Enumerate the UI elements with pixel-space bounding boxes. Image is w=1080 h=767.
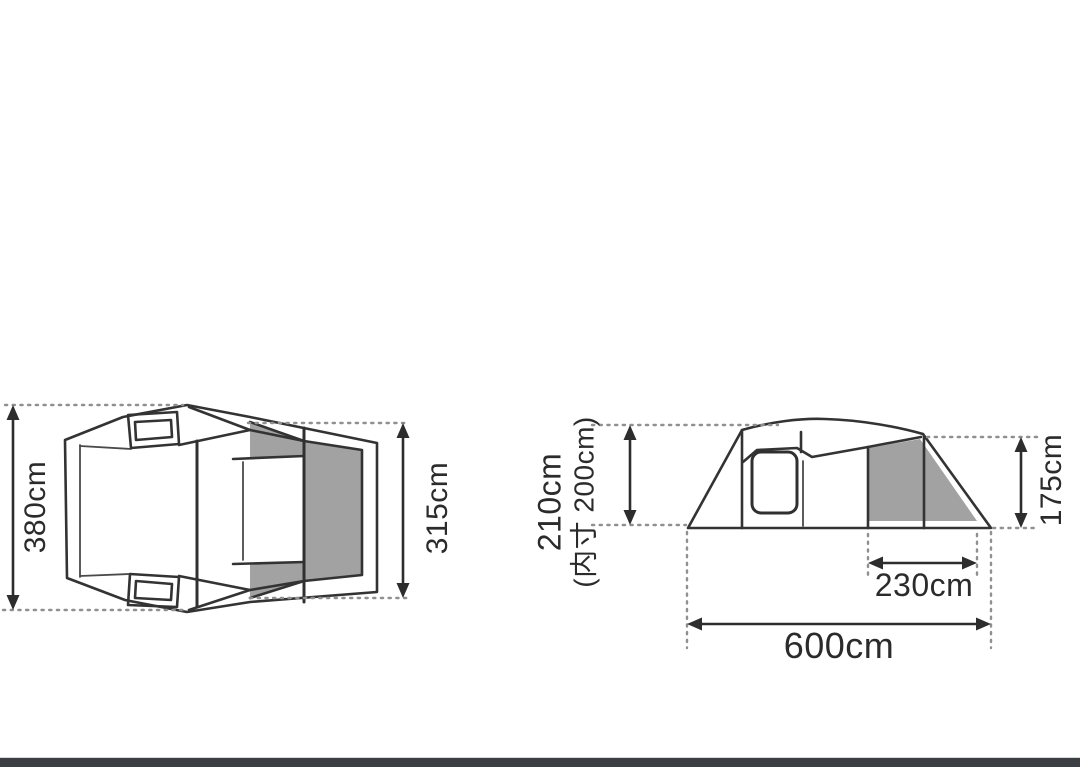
dimension-arrow-175 — [1015, 437, 1028, 528]
dimension-arrow-210 — [624, 425, 637, 525]
dimension-arrow-380 — [7, 405, 20, 610]
tent-dimension-diagram: 380cm 315cm 210cm (内寸 200cm) 175cm 230cm… — [0, 0, 1080, 767]
top-view-vent-line-bottom — [179, 576, 250, 590]
label-side-view-rear-height: 175cm — [1035, 434, 1069, 527]
tent-side-view-drawing — [688, 419, 991, 528]
dimension-arrow-315 — [397, 423, 410, 598]
label-top-view-inner-width: 315cm — [421, 462, 455, 555]
side-view-reference-lines — [592, 425, 1037, 648]
side-view-door-window — [752, 452, 797, 513]
top-view-vent-bottom-inner — [135, 581, 172, 600]
label-peak-height-value: 210cm — [532, 416, 568, 587]
tent-top-view-drawing — [65, 405, 377, 612]
label-top-view-width: 380cm — [19, 461, 53, 554]
footer-bar — [0, 757, 1080, 767]
top-view-left-connect-bottom — [80, 574, 130, 576]
label-side-view-total-length: 600cm — [784, 626, 895, 666]
label-inner-height-value: (内寸 200cm) — [568, 416, 599, 587]
label-side-view-peak-height: 210cm (内寸 200cm) — [532, 416, 599, 587]
diagram-canvas — [0, 0, 1080, 755]
top-view-vent-line-top — [179, 430, 250, 445]
top-view-left-connect-top — [80, 446, 131, 449]
label-side-view-inner-room-length: 230cm — [875, 568, 974, 604]
top-view-vent-top-inner — [135, 420, 172, 440]
